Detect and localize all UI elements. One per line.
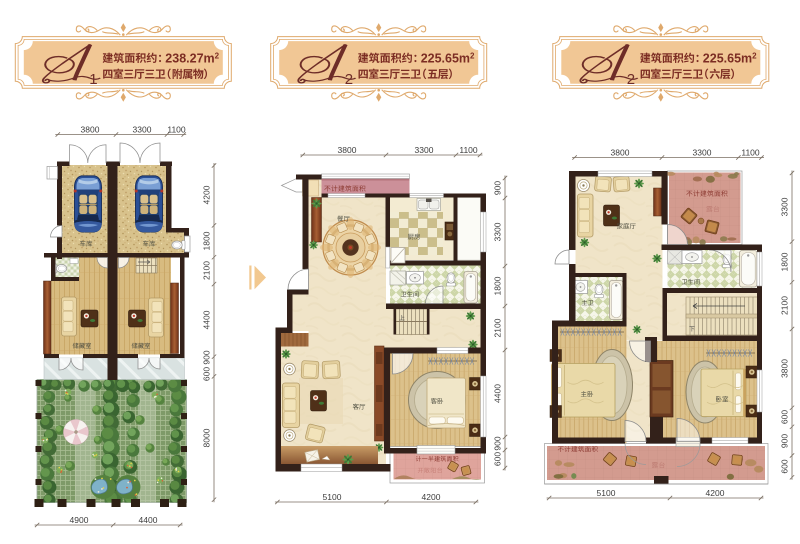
svg-text:900: 900 (202, 350, 212, 364)
svg-text:2100: 2100 (202, 261, 212, 280)
svg-text:900: 900 (780, 434, 790, 448)
svg-text:600: 600 (780, 459, 790, 473)
svg-text:4900: 4900 (70, 515, 89, 525)
svg-text:238.27m2: 238.27m2 (165, 52, 219, 66)
svg-text:1800: 1800 (493, 276, 503, 295)
svg-text:600: 600 (202, 367, 212, 381)
svg-text:2: 2 (627, 71, 635, 88)
svg-text:600: 600 (493, 452, 503, 466)
svg-text:1100: 1100 (167, 124, 186, 134)
svg-text:1100: 1100 (459, 145, 478, 155)
svg-text:2100: 2100 (780, 296, 790, 315)
svg-text:2100: 2100 (493, 318, 503, 337)
svg-text:1800: 1800 (202, 231, 212, 250)
svg-text:600: 600 (780, 410, 790, 424)
svg-text:4200: 4200 (422, 492, 441, 502)
svg-text:3300: 3300 (493, 222, 503, 241)
svg-text:3800: 3800 (81, 124, 100, 134)
svg-text:900: 900 (493, 436, 503, 450)
svg-text:4400: 4400 (202, 310, 212, 329)
svg-text:5100: 5100 (597, 488, 616, 498)
svg-text:8000: 8000 (202, 428, 212, 447)
svg-text:225.65m2: 225.65m2 (703, 52, 757, 66)
svg-text:2: 2 (345, 71, 353, 88)
svg-text:3300: 3300 (415, 145, 434, 155)
svg-text:900: 900 (493, 181, 503, 195)
svg-text:3300: 3300 (133, 124, 152, 134)
svg-text:1: 1 (89, 71, 97, 88)
svg-text:4200: 4200 (706, 488, 725, 498)
svg-text:1100: 1100 (741, 147, 760, 157)
svg-text:3300: 3300 (693, 147, 712, 157)
svg-text:225.65m2: 225.65m2 (421, 52, 475, 66)
svg-text:1800: 1800 (780, 252, 790, 271)
svg-text:4400: 4400 (493, 384, 503, 403)
svg-text:4400: 4400 (139, 515, 158, 525)
svg-text:4200: 4200 (202, 185, 212, 204)
svg-text:3800: 3800 (780, 359, 790, 378)
svg-text:3300: 3300 (780, 197, 790, 216)
svg-text:3800: 3800 (338, 145, 357, 155)
svg-text:5100: 5100 (323, 492, 342, 502)
svg-text:3800: 3800 (611, 147, 630, 157)
